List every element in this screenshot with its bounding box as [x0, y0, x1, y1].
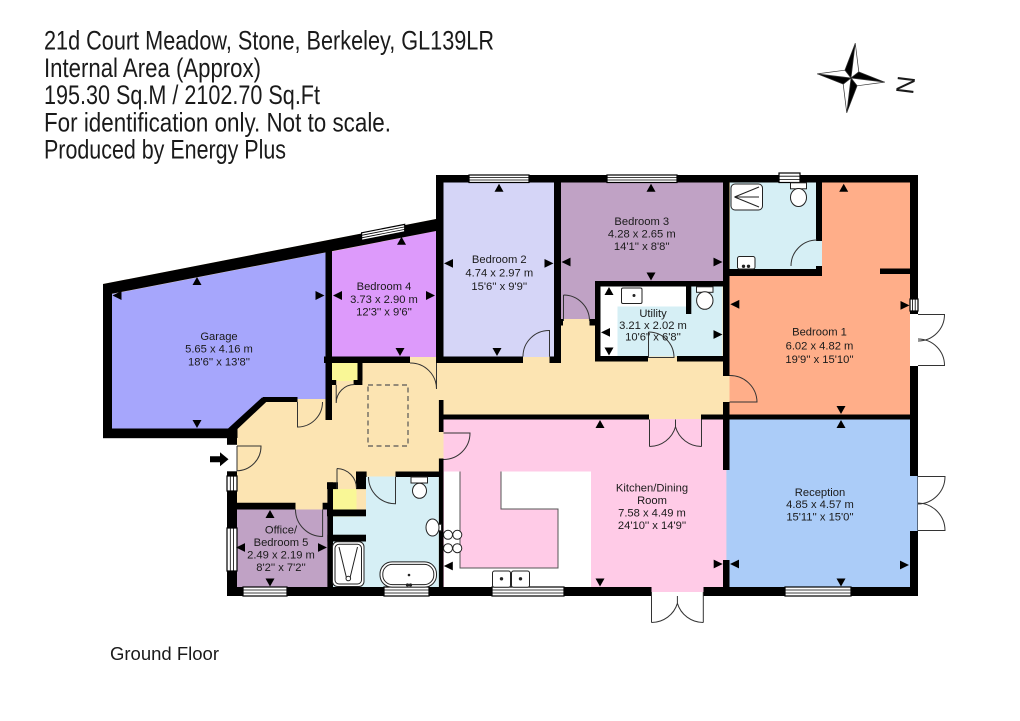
- svg-text:24'10'' x 14'9'': 24'10'' x 14'9'': [618, 520, 686, 532]
- svg-text:Ground Floor: Ground Floor: [110, 643, 219, 664]
- svg-text:Room: Room: [637, 495, 667, 507]
- svg-text:N: N: [890, 74, 920, 95]
- svg-text:4.85 x 4.57 m: 4.85 x 4.57 m: [786, 499, 854, 511]
- svg-text:18'6'' x 13'8'': 18'6'' x 13'8'': [188, 356, 250, 368]
- svg-text:Bedroom 2: Bedroom 2: [472, 254, 527, 266]
- svg-text:Kitchen/Dining: Kitchen/Dining: [616, 483, 688, 495]
- svg-text:6.02 x 4.82 m: 6.02 x 4.82 m: [786, 341, 854, 353]
- svg-text:5.65 x 4.16 m: 5.65 x 4.16 m: [185, 344, 253, 356]
- svg-text:8'2'' x 7'2'': 8'2'' x 7'2'': [256, 562, 306, 574]
- svg-text:15'6'' x 9'9'': 15'6'' x 9'9'': [471, 281, 527, 293]
- svg-text:Office/: Office/: [265, 525, 298, 537]
- svg-text:19'9'' x 15'10'': 19'9'' x 15'10'': [785, 354, 853, 366]
- svg-text:3.21 x 2.02 m: 3.21 x 2.02 m: [619, 320, 687, 332]
- svg-text:Garage: Garage: [200, 331, 237, 343]
- svg-text:Bedroom 3: Bedroom 3: [614, 216, 669, 228]
- svg-text:4.74 x 2.97 m: 4.74 x 2.97 m: [465, 268, 533, 280]
- svg-text:Internal Area (Approx): Internal Area (Approx): [44, 53, 261, 83]
- svg-text:12'3'' x 9'6'': 12'3'' x 9'6'': [356, 307, 412, 319]
- svg-text:4.28 x 2.65 m: 4.28 x 2.65 m: [608, 229, 676, 241]
- svg-text:For identification only. Not t: For identification only. Not to scale.: [44, 107, 391, 137]
- svg-text:Bedroom 1: Bedroom 1: [792, 327, 847, 339]
- svg-text:3.73 x 2.90 m: 3.73 x 2.90 m: [350, 294, 418, 306]
- svg-text:Utility: Utility: [639, 308, 667, 320]
- svg-text:195.30 Sq.M / 2102.70 Sq.Ft: 195.30 Sq.M / 2102.70 Sq.Ft: [44, 80, 320, 110]
- svg-text:14'1'' x 8'8'': 14'1'' x 8'8'': [614, 241, 670, 253]
- svg-text:Bedroom 4: Bedroom 4: [357, 281, 412, 293]
- svg-text:Bedroom 5: Bedroom 5: [254, 537, 309, 549]
- svg-text:2.49 x 2.19 m: 2.49 x 2.19 m: [247, 550, 315, 562]
- svg-text:10'6'' x 6'8'': 10'6'' x 6'8'': [625, 332, 681, 344]
- svg-text:Reception: Reception: [795, 487, 845, 499]
- svg-text:Produced by Energy Plus: Produced by Energy Plus: [44, 135, 286, 165]
- svg-text:15'11'' x 15'0'': 15'11'' x 15'0'': [786, 512, 853, 524]
- svg-text:21d Court Meadow, Stone, Berke: 21d Court Meadow, Stone, Berkeley, GL139…: [44, 26, 494, 56]
- svg-text:7.58 x 4.49 m: 7.58 x 4.49 m: [618, 508, 686, 520]
